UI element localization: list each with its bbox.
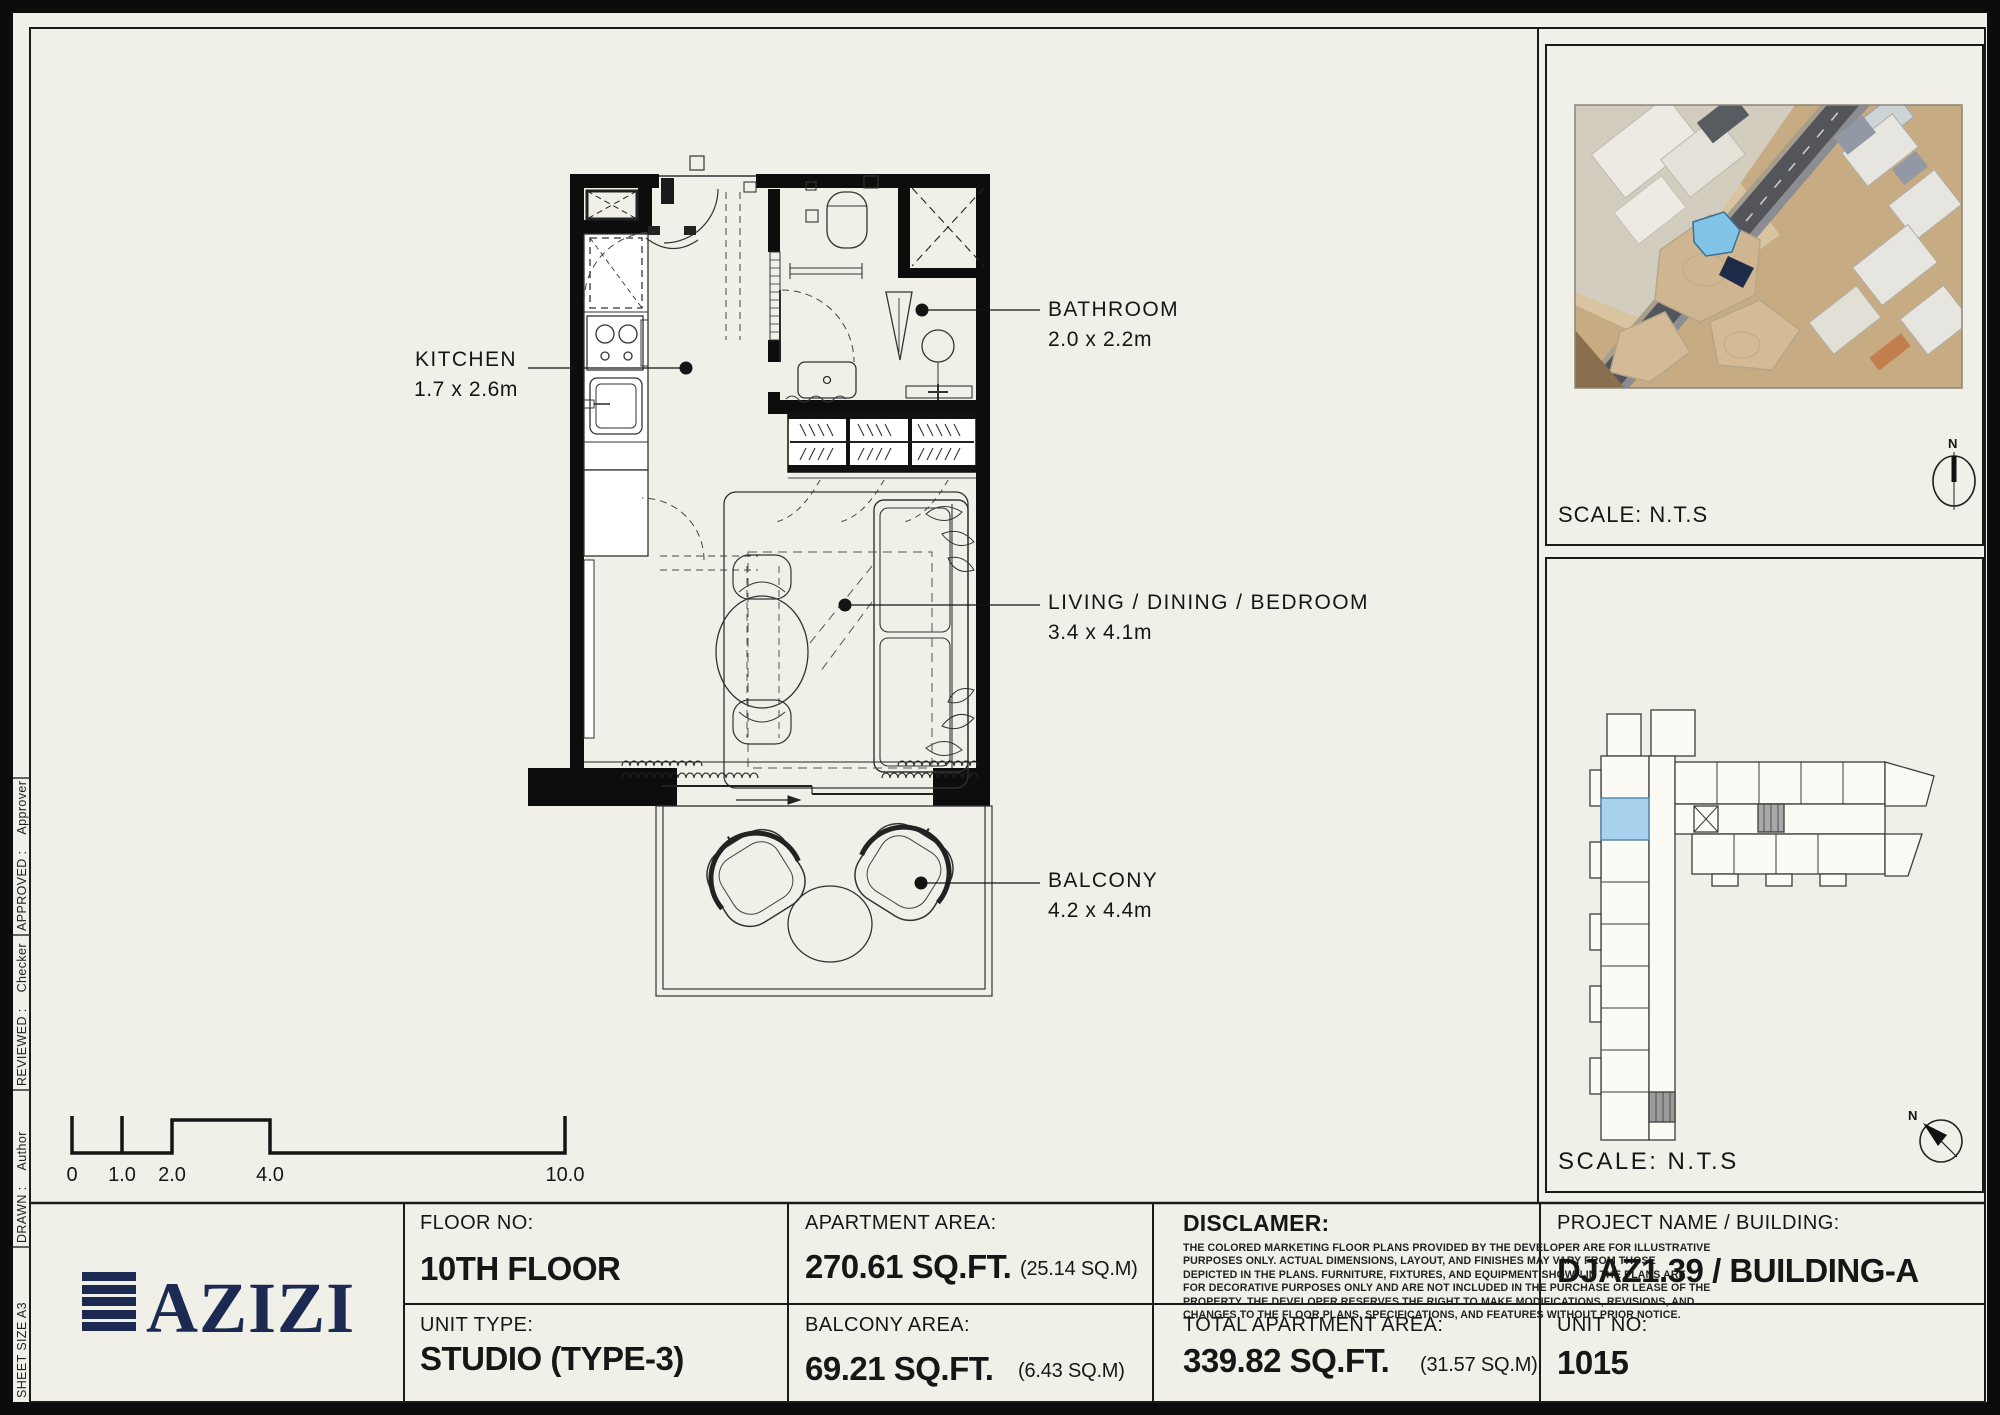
total-area-metric: (31.57 SQ.M) bbox=[1420, 1354, 1538, 1377]
drawn-value: Author bbox=[15, 1131, 29, 1170]
drawn-label: DRAWN : bbox=[15, 1187, 29, 1244]
floor-no-value: 10TH FLOOR bbox=[420, 1250, 620, 1288]
map-north-letter: N bbox=[1948, 436, 1957, 451]
kitchen-name: KITCHEN bbox=[410, 348, 522, 372]
highlighted-unit bbox=[1601, 798, 1649, 840]
strip-reviewed: REVIEWED :Checker bbox=[15, 938, 29, 1086]
apartment-area-metric: (25.14 SQ.M) bbox=[1020, 1258, 1138, 1281]
shower-screen bbox=[770, 252, 780, 340]
scale-bar bbox=[72, 1116, 565, 1153]
north-arrow-keyplan bbox=[1920, 1120, 1962, 1162]
project-value: DJAZ1.39 / BUILDING-A bbox=[1557, 1252, 1919, 1290]
scale-tick-0: 0 bbox=[66, 1164, 77, 1187]
north-arrow-map bbox=[1933, 452, 1975, 510]
logo-bars-icon bbox=[82, 1272, 136, 1335]
floor-plan-sheet: KITCHEN 1.7 x 2.6m BATHROOM 2.0 x 2.2m L… bbox=[0, 0, 2000, 1415]
reviewed-label: REVIEWED : bbox=[15, 1008, 29, 1086]
balcony-area-value: 69.21 SQ.FT. bbox=[805, 1350, 993, 1388]
scale-tick-10: 10.0 bbox=[546, 1164, 585, 1187]
balcony-name: BALCONY bbox=[1048, 869, 1158, 893]
balcony-label: BALCONY 4.2 x 4.4m bbox=[1048, 869, 1158, 923]
balcony bbox=[656, 805, 992, 996]
unit-no-label: UNIT NO: bbox=[1557, 1314, 1648, 1337]
total-area-value: 339.82 SQ.FT. bbox=[1183, 1342, 1389, 1380]
entry-closet bbox=[646, 226, 698, 249]
unit-type-value: STUDIO (TYPE-3) bbox=[420, 1340, 684, 1378]
living-label: LIVING / DINING / BEDROOM 3.4 x 4.1m bbox=[1048, 591, 1369, 645]
entry-door bbox=[659, 156, 756, 243]
reviewed-value: Checker bbox=[15, 943, 29, 992]
logo-wordmark: AZIZI bbox=[146, 1268, 355, 1348]
total-area-label: TOTAL APARTMENT AREA: bbox=[1183, 1314, 1443, 1337]
unit-type-label: UNIT TYPE: bbox=[420, 1314, 533, 1337]
balcony-area-label: BALCONY AREA: bbox=[805, 1314, 970, 1337]
apartment-area-value: 270.61 SQ.FT. bbox=[805, 1248, 1011, 1286]
strip-drawn: DRAWN :Author bbox=[15, 1093, 29, 1243]
bathroom-name: BATHROOM bbox=[1048, 298, 1179, 322]
unit-floor-plan bbox=[528, 156, 1040, 996]
kitchen-fittings bbox=[584, 234, 648, 738]
unit-no-value: 1015 bbox=[1557, 1344, 1628, 1382]
azizi-logo: AZIZI bbox=[82, 1272, 355, 1344]
scale-tick-2: 2.0 bbox=[158, 1164, 186, 1187]
bathroom-label: BATHROOM 2.0 x 2.2m bbox=[1048, 298, 1179, 352]
drawing-canvas bbox=[0, 0, 2000, 1415]
key-plan-drawing bbox=[1590, 710, 1934, 1140]
strip-sheet-size: SHEET SIZE A3 bbox=[15, 1250, 29, 1398]
scale-tick-4: 4.0 bbox=[256, 1164, 284, 1187]
wardrobe bbox=[776, 413, 976, 522]
strip-approved: APPROVED :Approver bbox=[15, 781, 29, 931]
living-furniture bbox=[716, 492, 974, 788]
living-name: LIVING / DINING / BEDROOM bbox=[1048, 591, 1369, 615]
satellite-map-image bbox=[1575, 93, 1971, 398]
approved-label: APPROVED : bbox=[15, 851, 29, 931]
keyplan-scale-note: SCALE: N.T.S bbox=[1558, 1148, 1739, 1176]
balcony-dims: 4.2 x 4.4m bbox=[1048, 899, 1158, 923]
apartment-area-label: APARTMENT AREA: bbox=[805, 1212, 997, 1235]
living-dims: 3.4 x 4.1m bbox=[1048, 621, 1369, 645]
floor-no-label: FLOOR NO: bbox=[420, 1212, 534, 1235]
approved-value: Approver bbox=[15, 781, 29, 835]
kitchen-label: KITCHEN 1.7 x 2.6m bbox=[410, 348, 522, 402]
bathroom-dims: 2.0 x 2.2m bbox=[1048, 328, 1179, 352]
map-scale-note: SCALE: N.T.S bbox=[1558, 502, 1708, 528]
balcony-area-metric: (6.43 SQ.M) bbox=[1018, 1360, 1125, 1383]
project-label: PROJECT NAME / BUILDING: bbox=[1557, 1212, 1840, 1235]
kitchen-dims: 1.7 x 2.6m bbox=[410, 378, 522, 402]
scale-tick-1: 1.0 bbox=[108, 1164, 136, 1187]
disclaimer-label: DISCLAMER: bbox=[1183, 1210, 1329, 1237]
keyplan-north-letter: N bbox=[1908, 1108, 1917, 1123]
